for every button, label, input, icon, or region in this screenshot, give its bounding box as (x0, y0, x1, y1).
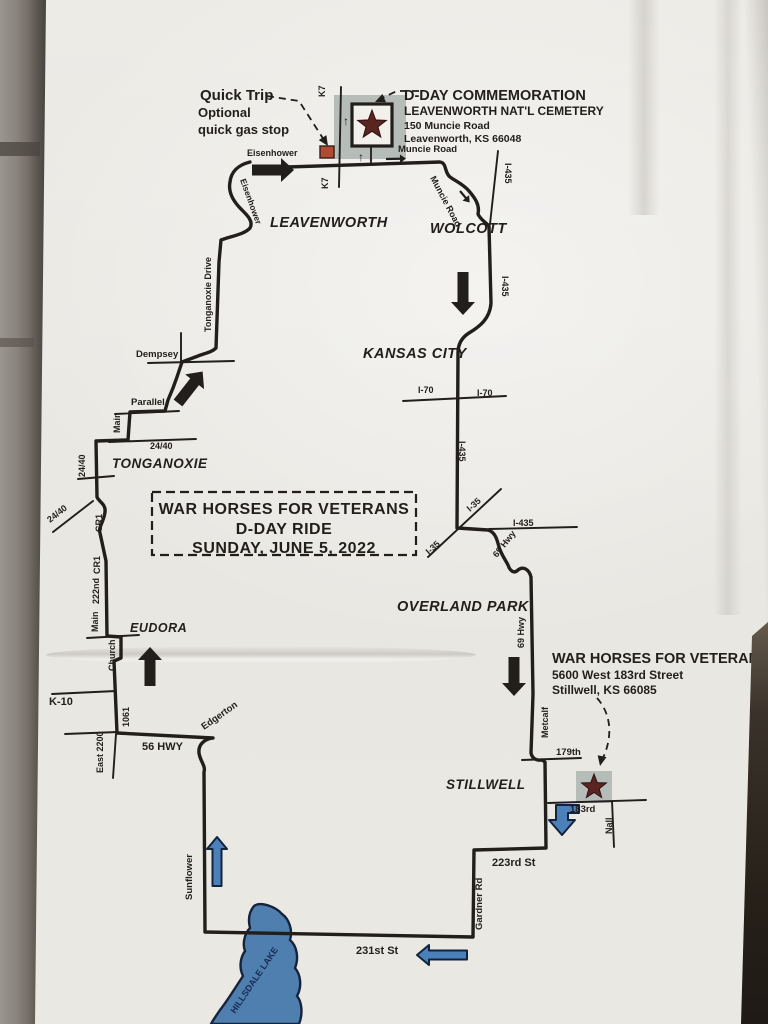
ride-title-box-line-1: WAR HORSES FOR VETERANS (159, 501, 410, 518)
cemetery-info-line-2: LEAVENWORTH NAT'L CEMETERY (404, 104, 604, 118)
cemetery-info-line-4: Leavenworth, KS 66048 (404, 133, 521, 145)
lbl-i435-mid: I-435 (500, 276, 510, 297)
lbl-179th: 179th (556, 747, 581, 758)
lbl-tonganoxie-drive: Tonganoxie Drive (203, 257, 213, 332)
lbl-east-2200: East 2200 (95, 731, 105, 773)
lbl-overland-park: OVERLAND PARK (397, 599, 530, 615)
hillsdale-lake (211, 904, 301, 1024)
lbl-222nd: 222nd (91, 578, 101, 604)
lbl-cr1-lower: CR1 (92, 556, 102, 574)
lbl-231st: 231st St (356, 945, 399, 957)
road-179th (522, 758, 581, 760)
road-east2200-south (113, 734, 116, 778)
lbl-i35-upper: I-35 (465, 496, 483, 514)
warhorses-info-line-2: 5600 West 183rd Street (552, 668, 683, 682)
glyph-arrow-down-gate: ↓ (368, 150, 374, 164)
lbl-k7-bottom: K7 (320, 177, 330, 189)
arrow-eisenhower-east (252, 158, 294, 182)
lbl-leavenworth: LEAVENWORTH (270, 215, 388, 231)
road-i435-north (490, 151, 498, 224)
door-frame-hinge-mark-2 (0, 338, 34, 347)
lbl-183rd: 183rd (570, 804, 596, 815)
lbl-223rd: 223rd St (492, 857, 536, 869)
lbl-main-tonganoxie: Main (112, 412, 122, 433)
lbl-i435-wolcott: I-435 (503, 163, 513, 184)
lbl-k7-top: K7 (317, 85, 327, 97)
lbl-tonganoxie: TONGANOXIE (112, 456, 208, 471)
ride-title-box-line-3: SUNDAY, JUNE 5, 2022 (192, 540, 376, 557)
lbl-i70-left: I-70 (418, 385, 434, 395)
lbl-wolcott: WOLCOTT (430, 221, 507, 237)
lbl-metcalf: Metcalf (540, 706, 550, 738)
lbl-stillwell: STILLWELL (446, 777, 526, 792)
road-56hwy-west (65, 732, 118, 734)
quicktrip-note-line-3: quick gas stop (198, 122, 289, 137)
ride-route-map: WAR HORSES FOR VETERANSD-DAY RIDESUNDAY,… (0, 0, 768, 1024)
road-k10 (52, 691, 116, 694)
lbl-gardner: Gardner Rd (474, 878, 485, 930)
arrow-231st-west (417, 945, 467, 965)
lbl-cr1-upper: CR1 (94, 514, 104, 532)
glyph-arrow-up-gate: ↑ (358, 150, 364, 164)
leader-warhorses (597, 698, 609, 760)
arrow-eudora-north (138, 647, 162, 686)
arrow-69hwy-south (502, 657, 526, 696)
quicktrip-note-line-2: Optional (198, 105, 251, 120)
quicktrip-gas-marker (320, 146, 334, 158)
lbl-i70-right: I-70 (477, 388, 493, 398)
cemetery-info-line-3: 150 Muncie Road (404, 120, 490, 132)
lbl-56hwy: 56 HWY (142, 741, 184, 753)
lbl-1061: 1061 (121, 707, 131, 727)
lbl-eudora: EUDORA (130, 621, 187, 635)
door-frame-hinge-mark (0, 142, 40, 156)
lbl-i35-lower: I-35 (424, 539, 442, 557)
lbl-eisenhower: Eisenhower (247, 148, 298, 158)
lbl-k10: K-10 (49, 696, 73, 708)
lbl-i435-kc: I-435 (457, 441, 467, 462)
lbl-dempsey: Dempsey (136, 349, 179, 360)
lbl-edgerton: Edgerton (199, 699, 240, 732)
glyph-arrow-up-cemetery: ↑ (343, 114, 349, 128)
arrow-sunflower-north (207, 837, 227, 886)
arrow-i435-south (451, 272, 475, 315)
road-dempsey (148, 361, 234, 363)
lbl-nall: Nall (604, 817, 614, 834)
warhorses-info-line-1: WAR HORSES FOR VETERANS (552, 651, 768, 667)
photo-of-route-map: WAR HORSES FOR VETERANSD-DAY RIDESUNDAY,… (0, 0, 768, 1024)
cemetery-info-line-1: D-DAY COMMEMORATION (404, 88, 586, 104)
lbl-2440-east: 24/40 (150, 441, 173, 451)
lbl-main-eudora: Main (90, 611, 100, 632)
lbl-parallel: Parallel (131, 397, 165, 408)
lbl-sunflower: Sunflower (184, 854, 195, 900)
ride-title-box-line-2: D-DAY RIDE (236, 521, 333, 538)
lbl-i435-east: I-435 (513, 518, 534, 528)
leader-warhorses-arrowhead (596, 755, 607, 767)
warhorses-info-line-3: Stillwell, KS 66085 (552, 683, 657, 697)
quicktrip-note-line-1: Quick Trip (200, 87, 273, 104)
lbl-muncie-road: Muncie Road (398, 144, 457, 155)
lbl-69hwy: 69 Hwy (516, 617, 526, 648)
lbl-2440-vert: 24/40 (77, 454, 87, 477)
lbl-church: Church (107, 640, 117, 672)
lbl-kansas-city: KANSAS CITY (363, 346, 468, 362)
